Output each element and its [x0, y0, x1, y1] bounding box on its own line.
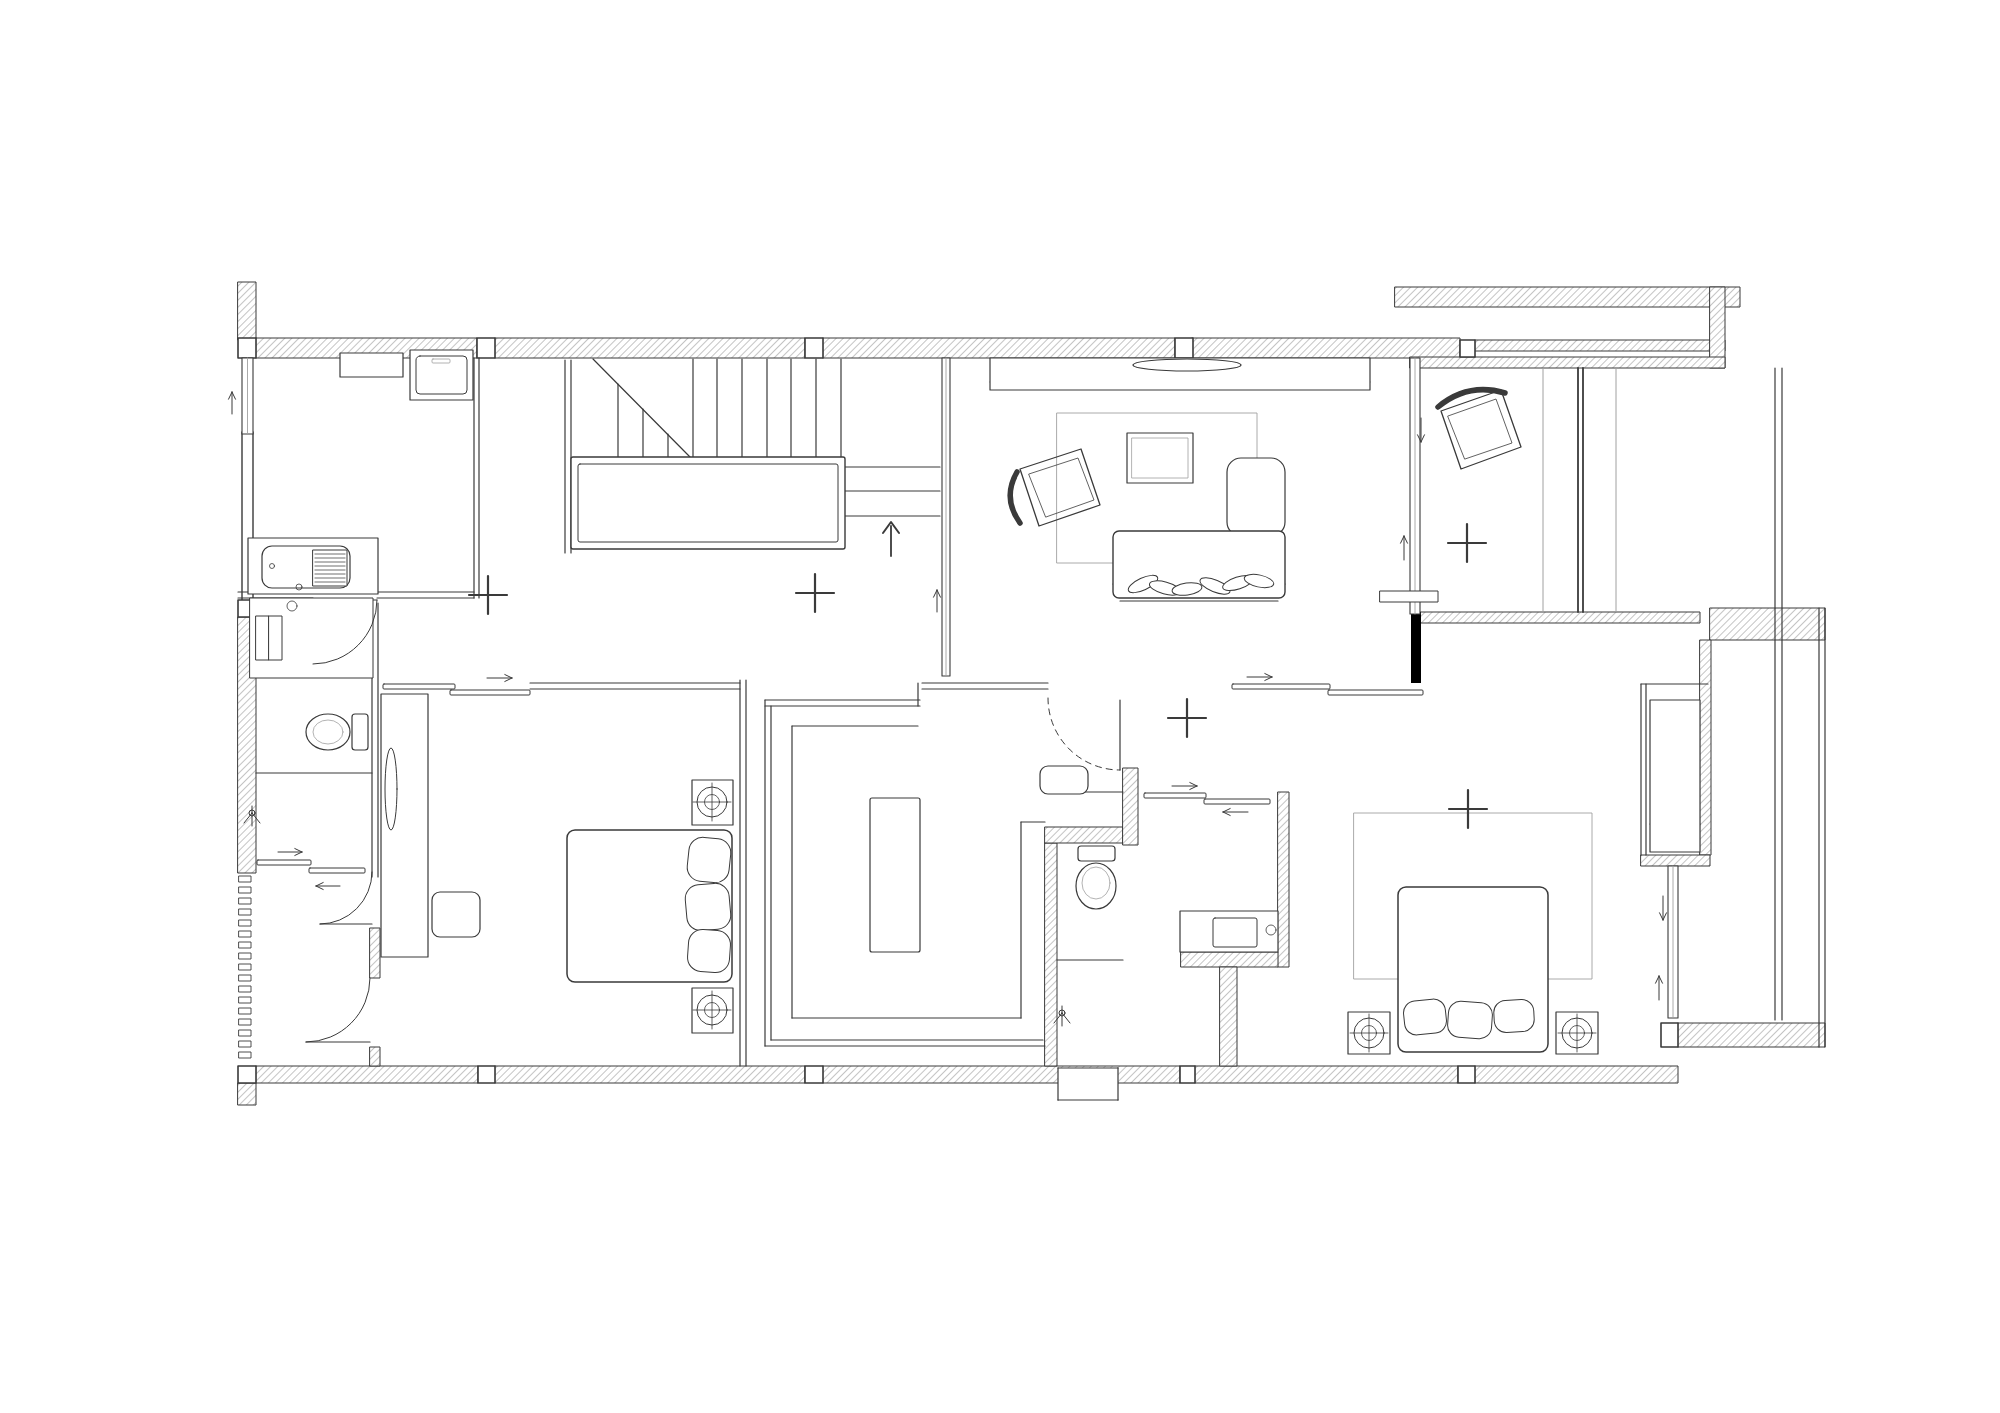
- column: [478, 1066, 495, 1083]
- wall-hatched: [1418, 612, 1700, 623]
- wall-hatched: [256, 1066, 478, 1083]
- louver-slat: [239, 876, 251, 882]
- wall-solid-black: [1411, 612, 1421, 683]
- vanity-sink: [1213, 918, 1257, 947]
- floor-plan-sheet: [0, 0, 2000, 1413]
- window-ledge: [1380, 591, 1438, 602]
- pillow: [684, 882, 732, 932]
- floor-plan-svg: [0, 0, 2000, 1413]
- sliding-door-panel: [309, 868, 365, 873]
- wall-hatched: [823, 1066, 1180, 1083]
- bench: [1040, 766, 1088, 794]
- wall-hatched: [1475, 1066, 1678, 1083]
- pillow: [1447, 1001, 1493, 1040]
- pillow: [1402, 998, 1447, 1036]
- coffee-table-inner: [1132, 438, 1188, 478]
- toilet-tank: [352, 714, 368, 750]
- wall-hatched: [1192, 338, 1460, 358]
- wall-cabinet: [340, 353, 403, 377]
- wall-hatched: [1475, 340, 1725, 351]
- desk-chair: [432, 892, 480, 937]
- louver-slat: [239, 1008, 251, 1014]
- desk-mirror: [385, 748, 397, 830]
- column: [1180, 1066, 1195, 1083]
- tv: [1133, 359, 1241, 371]
- column: [805, 1066, 823, 1083]
- louver-slat: [239, 887, 251, 893]
- wall-hatched: [1700, 640, 1711, 855]
- bath-cabinet: [256, 616, 269, 660]
- wall-hatched: [1395, 287, 1740, 307]
- wall-hatched: [1220, 967, 1237, 1066]
- louver-slat: [239, 898, 251, 904]
- wall-hatched: [1678, 1023, 1825, 1047]
- louver-slat: [239, 1041, 251, 1047]
- louver-slat: [239, 1019, 251, 1025]
- wall-hatched: [1710, 287, 1725, 368]
- louver-slat: [239, 942, 251, 948]
- louver-slat: [239, 964, 251, 970]
- wall-hatched: [1045, 827, 1123, 843]
- drain-grate: [313, 550, 347, 586]
- wall-hatched: [495, 1066, 805, 1083]
- sofa-chaise: [1227, 458, 1285, 536]
- sliding-door-panel: [1204, 799, 1270, 804]
- louver-slat: [239, 931, 251, 937]
- pillow: [1493, 999, 1535, 1033]
- stair-landing-inner: [578, 464, 838, 542]
- sliding-door-panel: [257, 860, 311, 865]
- column: [805, 338, 823, 358]
- column: [238, 1066, 256, 1083]
- wall-hatched: [370, 928, 380, 978]
- column: [1661, 1023, 1678, 1047]
- wall-hatched: [1045, 843, 1057, 1066]
- column: [238, 338, 256, 358]
- wall-hatched: [1710, 608, 1825, 640]
- wall-hatched: [238, 1083, 256, 1105]
- wall-hatched: [370, 1047, 380, 1066]
- louver-slat: [239, 997, 251, 1003]
- toilet-bowl-inner: [1082, 867, 1110, 899]
- wall-hatched: [238, 282, 256, 340]
- column: [1460, 340, 1475, 357]
- sliding-door-panel: [1328, 690, 1423, 695]
- toilet-bowl-inner: [313, 720, 343, 744]
- column: [477, 338, 495, 358]
- pillow: [687, 929, 732, 974]
- sliding-door-panel: [450, 690, 530, 695]
- louver-slat: [239, 986, 251, 992]
- closet-island: [870, 798, 920, 952]
- louver-slat: [239, 1052, 251, 1058]
- louver-slat: [239, 920, 251, 926]
- toilet-tank: [1078, 846, 1115, 861]
- sliding-door-panel: [383, 684, 455, 689]
- washer-handle: [432, 359, 450, 363]
- bath-cabinet: [269, 616, 282, 660]
- wall-hatched: [823, 338, 1175, 358]
- louver-slat: [239, 975, 251, 981]
- sliding-door-panel: [1232, 684, 1330, 689]
- wardrobe: [1650, 700, 1700, 852]
- louver-slat: [239, 953, 251, 959]
- wall-hatched: [1641, 855, 1710, 866]
- entry-mat: [1058, 1068, 1118, 1100]
- column: [1458, 1066, 1475, 1083]
- column: [1175, 338, 1193, 358]
- sliding-door-panel: [1144, 793, 1206, 798]
- wall-hatched: [1195, 1066, 1458, 1083]
- wall-hatched: [495, 338, 805, 358]
- wall-hatched: [1181, 952, 1278, 967]
- wall-hatched: [1410, 357, 1725, 368]
- pillow: [686, 836, 732, 884]
- louver-slat: [239, 909, 251, 915]
- wall-hatched: [1278, 792, 1289, 967]
- louver-slat: [239, 1030, 251, 1036]
- wall-hatched: [1123, 768, 1138, 845]
